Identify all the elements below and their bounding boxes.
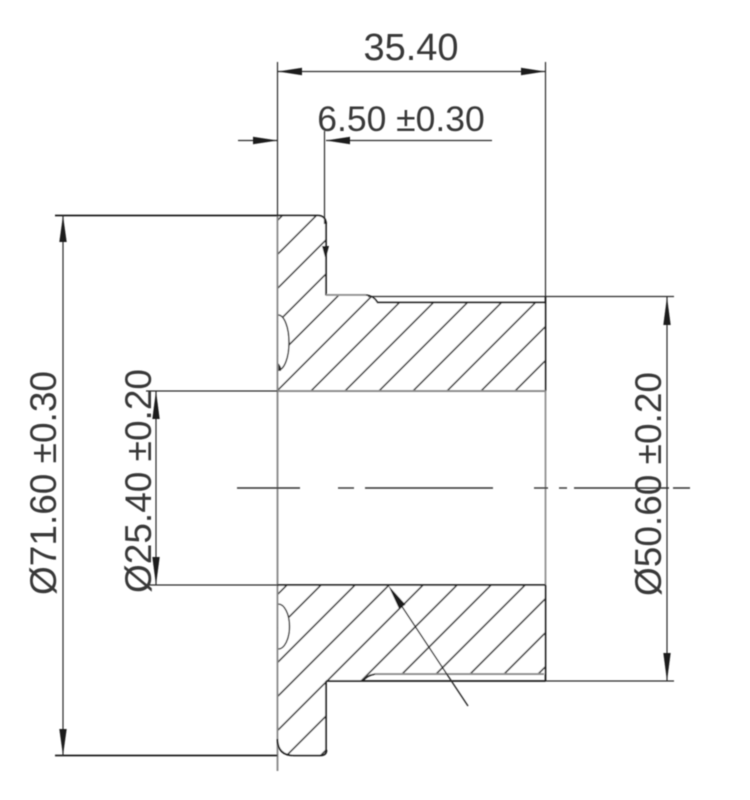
svg-text:Ø50.60 ±0.20: Ø50.60 ±0.20 [628, 372, 669, 596]
svg-text:6.50 ±0.30: 6.50 ±0.30 [317, 99, 485, 139]
svg-text:Ø25.40 ±0.20: Ø25.40 ±0.20 [118, 369, 159, 593]
svg-text:35.40: 35.40 [363, 27, 458, 69]
svg-text:Ø71.60 ±0.30: Ø71.60 ±0.30 [23, 371, 64, 595]
